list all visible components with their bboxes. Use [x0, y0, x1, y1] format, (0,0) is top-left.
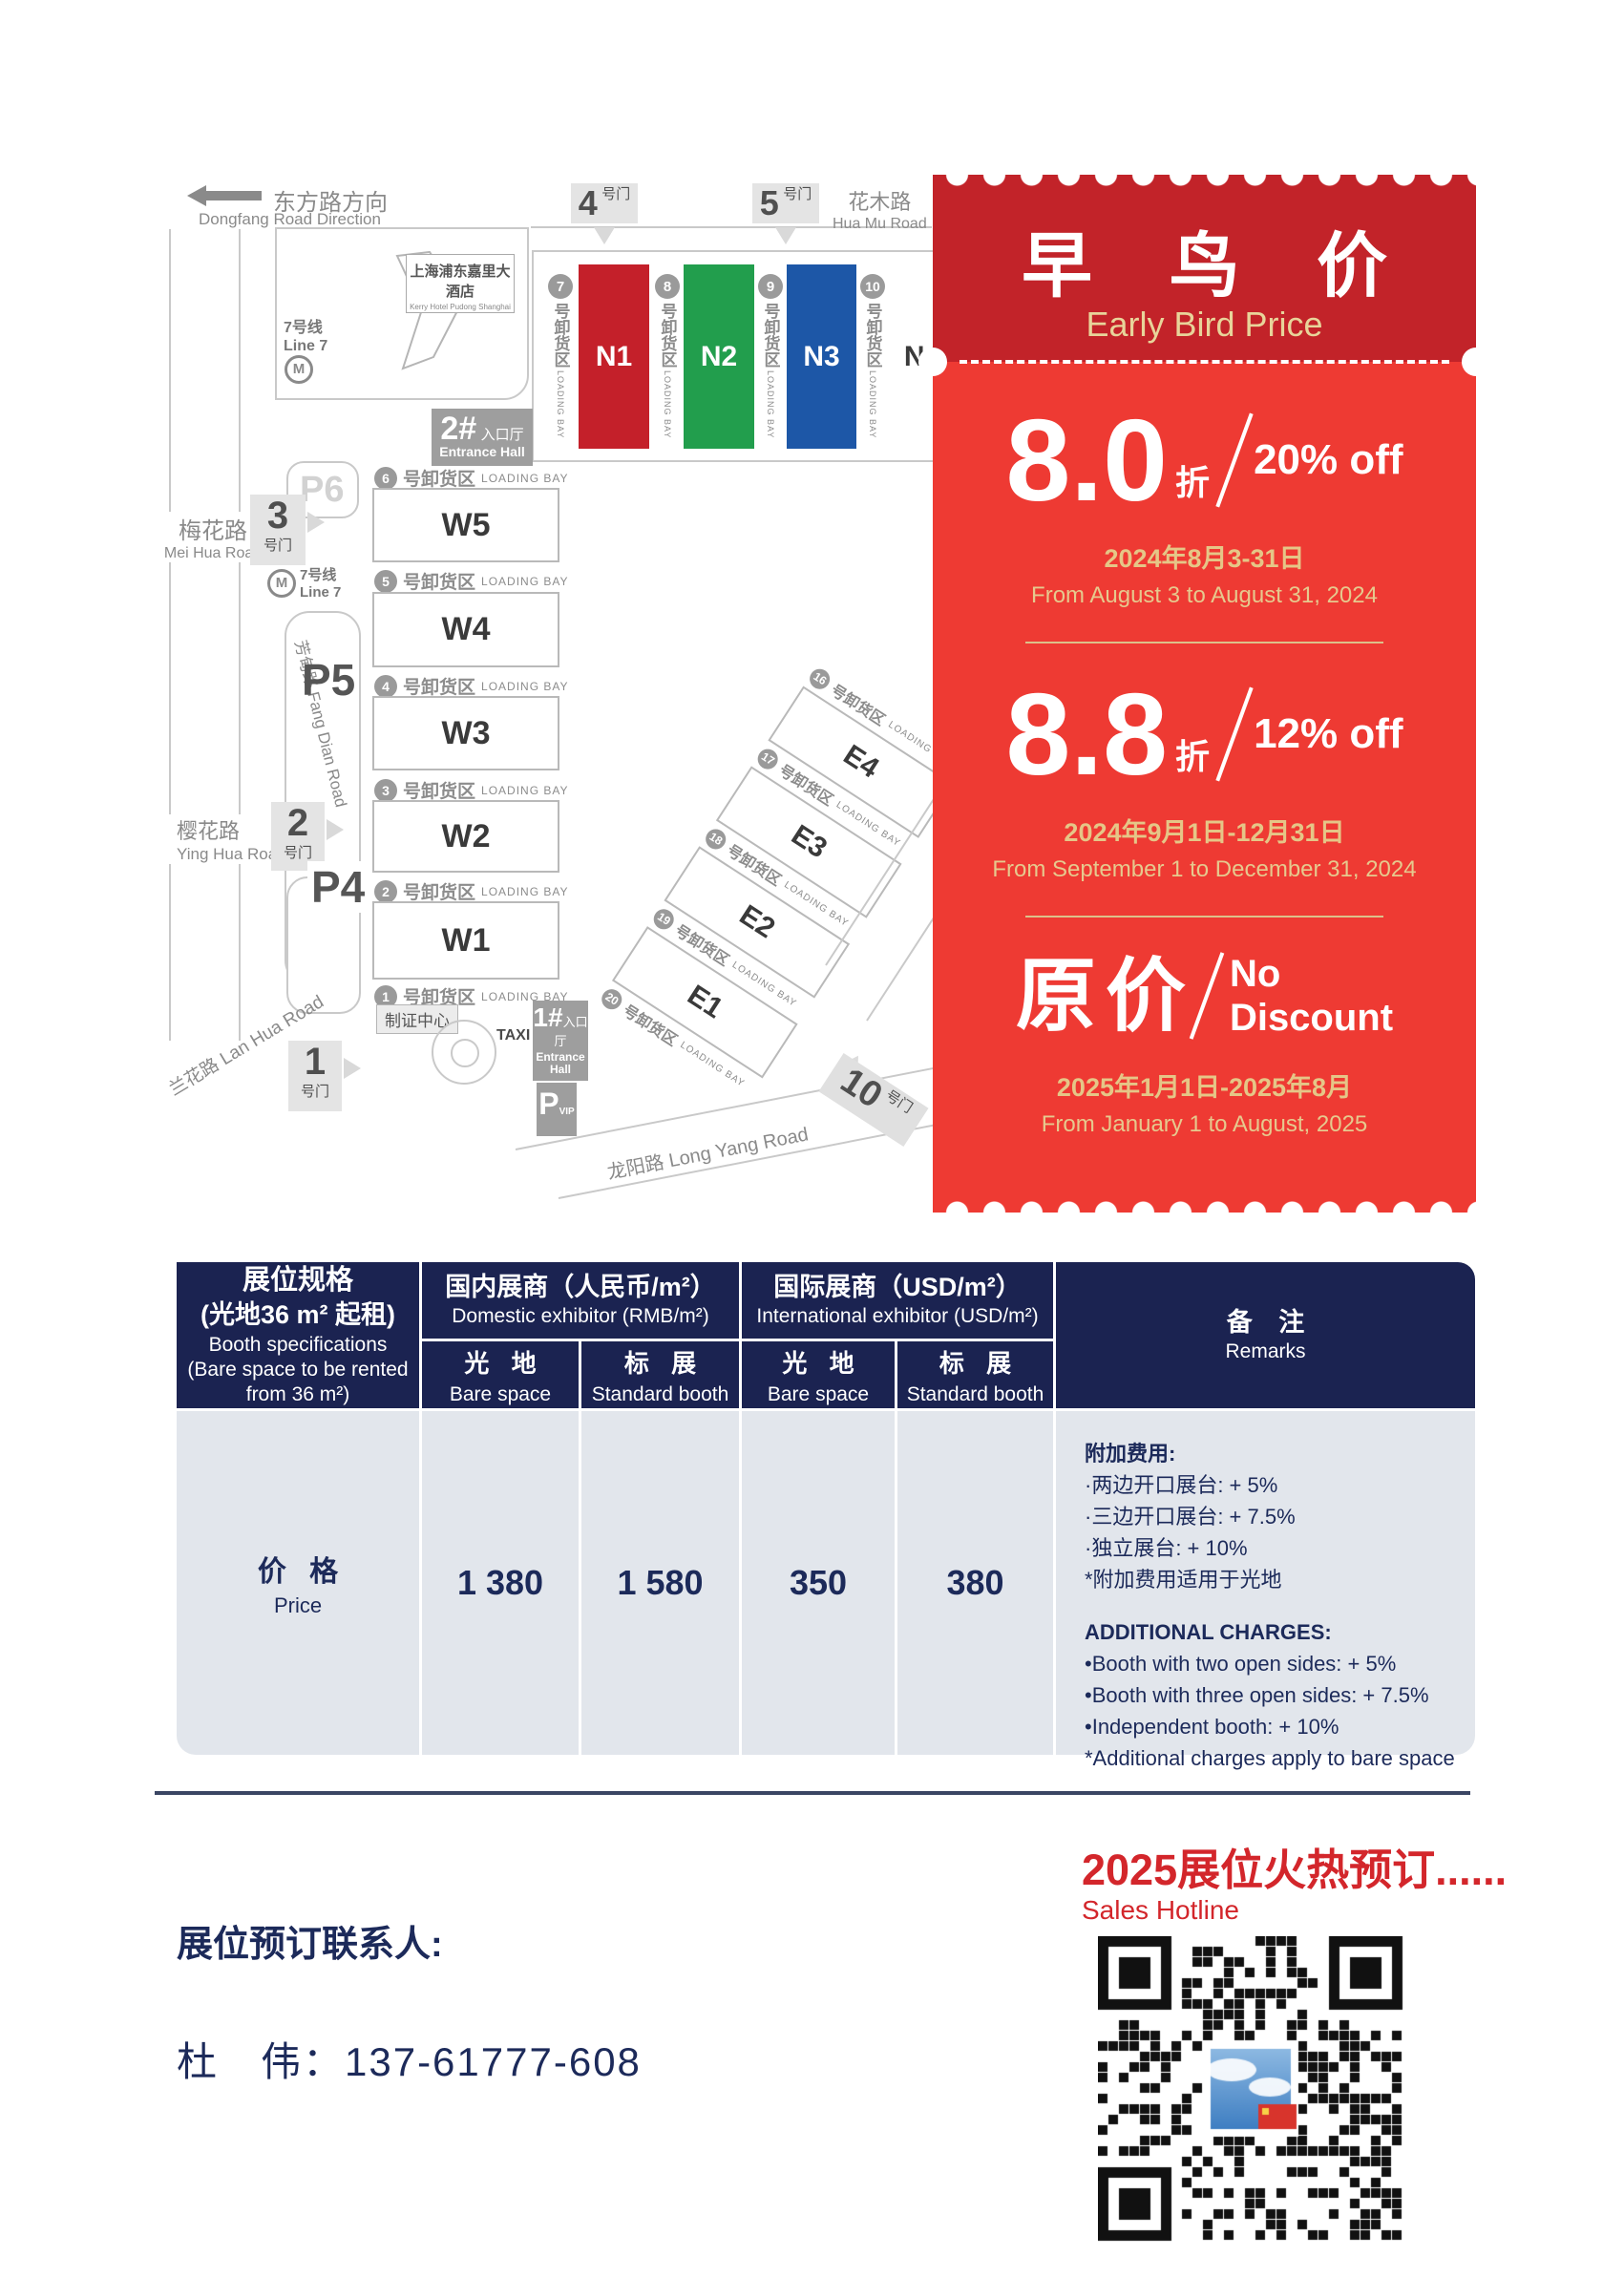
col-header-standard-international: 标 展 Standard booth: [897, 1341, 1053, 1408]
parking-p5-label: P5: [302, 654, 355, 706]
tier-3-label: 原价: [1016, 956, 1195, 1036]
coupon-title-cn: 早 鸟 价: [933, 209, 1476, 311]
tier-2-date-cn: 2024年9月1日-12月31日: [933, 812, 1476, 849]
gate-10: 10 号门: [818, 1053, 928, 1147]
loading-bay-9: 9 号卸货区 LOADING BAY: [756, 274, 785, 452]
price-international-standard: 380: [897, 1411, 1053, 1755]
early-bird-coupon: 早 鸟 价 Early Bird Price 8.0 折 20% off 202…: [933, 175, 1476, 1213]
stamp-perforation: [933, 175, 1476, 188]
loading-bay-7: 7 号卸货区 LOADING BAY: [546, 274, 575, 452]
tier-1-date-cn: 2024年8月3-31日: [933, 538, 1476, 575]
loading-bay-10: 10 号卸货区 LOADING BAY: [858, 274, 887, 452]
tier-3-text: No Discount: [1230, 952, 1393, 1040]
pricing-table: 展位规格 (光地36 m² 起租) Booth specifications (…: [177, 1262, 1475, 1755]
sales-hotline-heading: 2025展位火热预订......: [1082, 1835, 1483, 1897]
parking-p6-label: P6: [300, 470, 344, 511]
tier-1-unit: 折: [1175, 455, 1210, 505]
metro-line7-label: 7号线 Line 7: [284, 319, 327, 355]
road-label-dongfang-en: Dongfang Road Direction: [199, 210, 381, 229]
hotel-name-en: Kerry Hotel Pudong Shanghai: [407, 303, 514, 311]
slash-divider: [1215, 686, 1253, 781]
tier-1-percent: 20% off: [1254, 436, 1403, 484]
booking-contact-phone: 杜 伟：137-61777-608: [177, 2030, 642, 2088]
domestic-group-header: 国内展商（人民币/m²） Domestic exhibitor (RMB/m²): [422, 1262, 739, 1339]
metro-logo-icon: M: [285, 355, 313, 384]
tier-3-date-cn: 2025年1月1日-2025年8月: [933, 1066, 1476, 1104]
coupon-tiers: 8.0 折 20% off 2024年8月3-31日 From August 3…: [933, 402, 1476, 1138]
taxi-label: TAXI: [496, 1027, 530, 1044]
tier-3-date-en: From January 1 to August, 2025: [933, 1111, 1476, 1138]
hotel-label-box: 上海浦东嘉里大酒店 Kerry Hotel Pudong Shanghai: [406, 254, 515, 313]
tier-2-unit: 折: [1175, 729, 1210, 779]
price-international-bare: 350: [742, 1411, 895, 1755]
road-label-longyang: 龙阳路 Long Yang Road: [604, 1118, 810, 1184]
tier-2: 8.8 折 12% off 2024年9月1日-12月31日 From Sept…: [933, 676, 1476, 883]
hall-n3: N3: [787, 264, 856, 449]
col-header-bare-domestic: 光 地 Bare space: [422, 1341, 579, 1408]
coupon-title-en: Early Bird Price: [933, 305, 1476, 345]
tier-2-discount: 8.8: [1005, 676, 1168, 792]
coupon-dashed-separator: [960, 360, 1449, 364]
loading-bay-4: 4 号卸货区 LOADING BAY: [374, 673, 568, 699]
hall-w5: W5: [372, 488, 559, 562]
gate-5: 5 号门: [752, 183, 819, 223]
parking-p4-label: P4: [307, 861, 369, 913]
slash-divider: [1215, 412, 1253, 507]
east-halls-block: 16 号卸货区 LOADING BAY E4 17 号卸货区 LOADING B…: [598, 664, 969, 1101]
gate-4: 4 号门: [571, 183, 638, 223]
stamp-perforation: [933, 1199, 1476, 1213]
booking-contact-label: 展位预订联系人:: [177, 1914, 443, 1967]
gate-5-arrow-icon: [775, 227, 796, 244]
spec-header-cell: 展位规格 (光地36 m² 起租) Booth specifications (…: [177, 1262, 419, 1408]
remarks-header-cell: 备 注 Remarks: [1056, 1262, 1475, 1408]
gate-4-arrow-icon: [594, 227, 615, 244]
loading-bay-5: 5 号卸货区 LOADING BAY: [374, 568, 568, 594]
tier-divider: [1025, 916, 1384, 918]
gate-2-arrow-icon: [327, 819, 344, 840]
tier-divider: [1025, 642, 1384, 643]
wechat-qr-code: [1098, 1936, 1403, 2242]
loading-bay-2: 2 号卸货区 LOADING BAY: [374, 878, 568, 904]
loading-bay-8: 8 号卸货区 LOADING BAY: [653, 274, 682, 452]
gate-1-arrow-icon: [344, 1058, 361, 1079]
road-line: [169, 229, 171, 1041]
left-arrow-icon: [187, 185, 206, 206]
price-domestic-standard: 1 580: [581, 1411, 739, 1755]
hall-w4: W4: [372, 592, 559, 667]
tier-2-date-en: From September 1 to December 31, 2024: [933, 856, 1476, 883]
loading-bay-6: 6 号卸货区 LOADING BAY: [374, 465, 568, 491]
hall-n2: N2: [684, 264, 754, 449]
parking-vip: PVIP: [537, 1083, 577, 1136]
tier-1-discount: 8.0: [1005, 402, 1168, 518]
roundabout-center: [451, 1039, 479, 1067]
road-line: [239, 229, 241, 1041]
gate-3: 3 号门: [250, 495, 306, 565]
road-label-huamu: 花木路 Hua Mu Road: [833, 185, 927, 233]
gate-1: 1 号门: [288, 1041, 342, 1111]
tier-2-percent: 12% off: [1254, 710, 1403, 758]
hotel-name-cn: 上海浦东嘉里大酒店: [407, 261, 514, 301]
metro-logo-icon: M: [267, 569, 296, 598]
left-arrow-icon: [202, 191, 262, 200]
coupon-notch: [1462, 348, 1490, 376]
entrance-hall-1: 1#入口厅 Entrance Hall: [533, 1001, 588, 1081]
hall-w2: W2: [372, 800, 559, 873]
loading-bay-3: 3 号卸货区 LOADING BAY: [374, 777, 568, 803]
sales-hotline-subheading: Sales Hotline: [1082, 1895, 1239, 1926]
price-domestic-bare: 1 380: [422, 1411, 579, 1755]
gate-3-arrow-icon: [307, 512, 325, 533]
remarks-cell: 附加费用: ·两边开口展台: + 5% ·三边开口展台: + 7.5% ·独立展…: [1056, 1411, 1475, 1755]
tier-1: 8.0 折 20% off 2024年8月3-31日 From August 3…: [933, 402, 1476, 609]
flyer-page: 东方路方向 Dongfang Road Direction 上海浦东嘉里大酒店 …: [0, 0, 1624, 2278]
entrance-hall-2: 2# 入口厅 Entrance Hall: [432, 409, 533, 466]
international-group-header: 国际展商（USD/m²） International exhibitor (US…: [742, 1262, 1053, 1339]
hall-w1: W1: [372, 901, 559, 980]
col-header-standard-domestic: 标 展 Standard booth: [581, 1341, 739, 1408]
metro-line7-label: 7号线 Line 7: [300, 567, 341, 601]
coupon-notch: [918, 348, 947, 376]
hall-n1: N1: [579, 264, 649, 449]
section-divider: [155, 1791, 1470, 1795]
hall-w3: W3: [372, 696, 559, 770]
tier-3: 原价 No Discount 2025年1月1日-2025年8月 From Ja…: [933, 950, 1476, 1138]
tier-1-date-en: From August 3 to August 31, 2024: [933, 582, 1476, 609]
col-header-bare-international: 光 地 Bare space: [742, 1341, 895, 1408]
price-row-header: 价 格 Price: [177, 1411, 419, 1755]
